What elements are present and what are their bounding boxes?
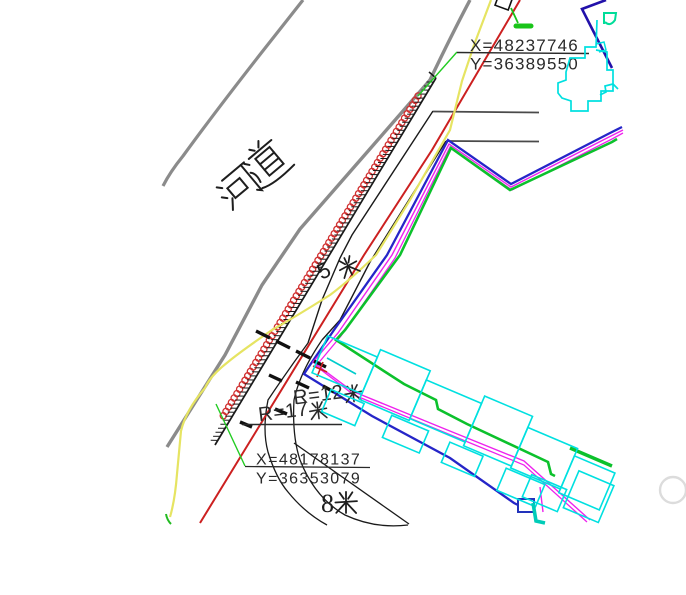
svg-text:X=48178137: X=48178137 — [256, 452, 361, 469]
svg-text:8: 8 — [321, 489, 334, 518]
svg-text:Y=36353079: Y=36353079 — [256, 471, 361, 488]
svg-text:R=17: R=17 — [257, 398, 310, 426]
svg-text:Y=36389550: Y=36389550 — [470, 55, 579, 74]
svg-text:5: 5 — [313, 257, 335, 285]
svg-text:X=48237746: X=48237746 — [470, 36, 579, 55]
